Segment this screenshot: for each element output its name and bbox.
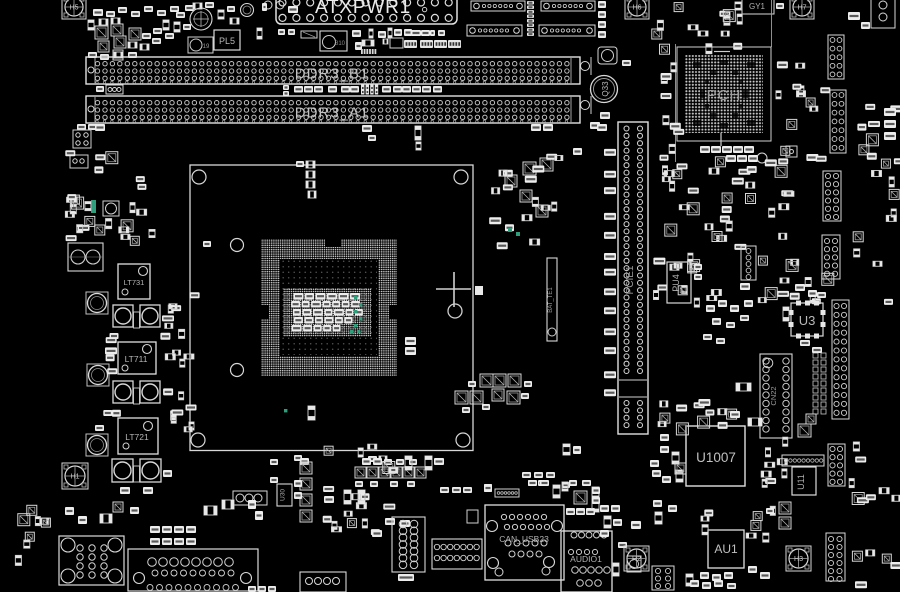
svg-text:H6: H6 [633,5,642,12]
svg-text:PCH: PCH [707,87,742,104]
svg-text:LT731: LT731 [124,278,145,287]
svg-text:U30: U30 [280,489,287,501]
svg-text:PL5: PL5 [219,36,235,46]
svg-text:CN22: CN22 [769,386,778,405]
svg-text:810: 810 [335,41,346,47]
svg-text:U1007: U1007 [696,450,736,465]
svg-text:AUDIO1: AUDIO1 [570,554,602,564]
svg-text:ATXPWR1: ATXPWR1 [315,0,411,18]
svg-text:19: 19 [203,44,210,50]
svg-text:DDR3_B1: DDR3_B1 [295,66,370,83]
svg-text:PCIE1: PCIE1 [625,265,636,294]
svg-text:H3: H3 [794,556,803,563]
svg-text:H7: H7 [798,5,807,12]
svg-text:U11: U11 [796,474,806,490]
svg-text:PU4: PU4 [671,274,681,292]
svg-text:LT711: LT711 [125,354,148,364]
svg-text:AU1: AU1 [714,542,738,556]
svg-text:CAN_USB23: CAN_USB23 [499,534,549,544]
svg-text:LT721: LT721 [125,432,149,442]
svg-text:BAT_TE1: BAT_TE1 [548,287,554,313]
svg-text:H5: H5 [70,5,79,12]
svg-text:H1: H1 [71,474,80,481]
svg-text:H2: H2 [632,556,641,563]
svg-text:Q33: Q33 [601,81,610,97]
svg-text:U3: U3 [799,313,816,328]
svg-text:DDR3_A1: DDR3_A1 [295,105,370,122]
svg-text:GY1: GY1 [749,2,766,11]
